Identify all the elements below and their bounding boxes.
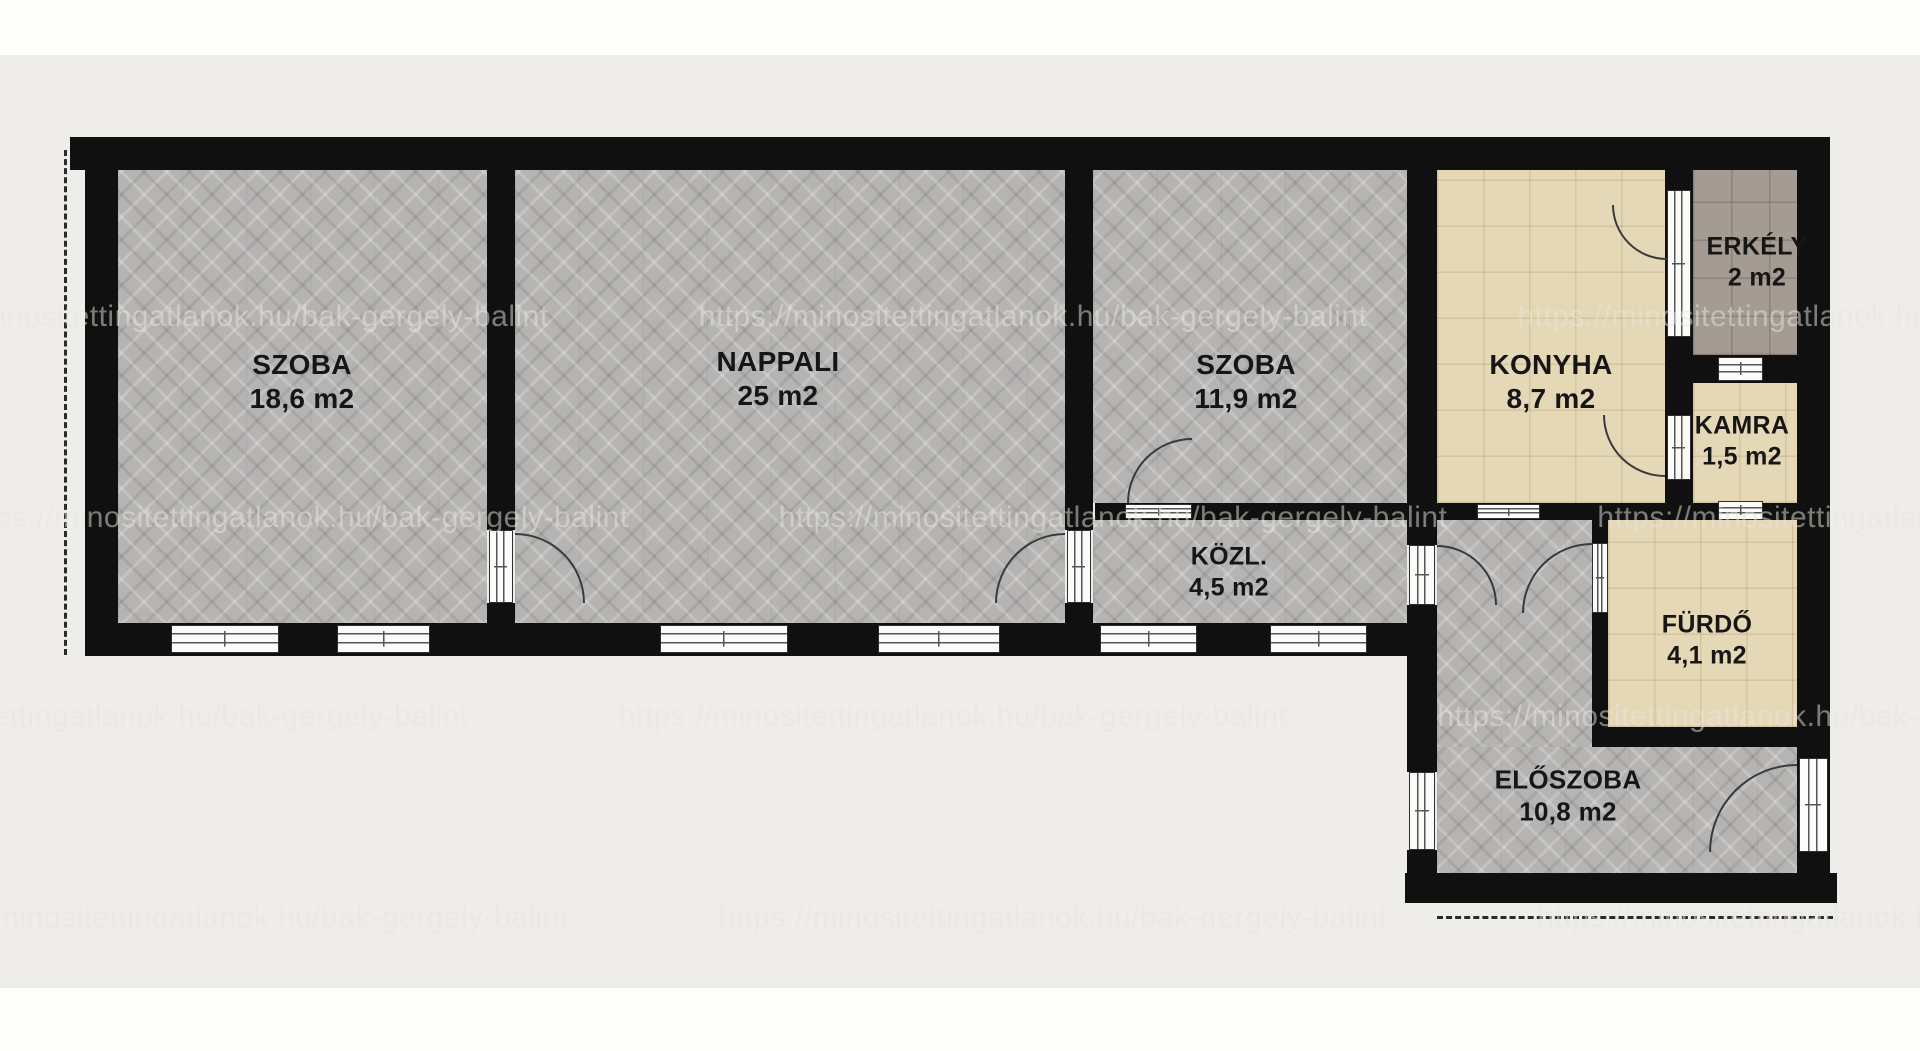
- room-area: 11,9 m2: [1194, 382, 1297, 416]
- room-area: 25 m2: [717, 379, 840, 413]
- room-label-kozl: KÖZL. 4,5 m2: [1189, 542, 1269, 603]
- wall-top: [70, 137, 1830, 170]
- window: [171, 625, 279, 653]
- door-entrance: [1799, 758, 1828, 852]
- opening-konyha-entry: [1477, 504, 1540, 519]
- window-erkely-kamra: [1718, 357, 1763, 381]
- wall-szoba2-konyha: [1407, 170, 1437, 503]
- window-kamra-bottom: [1718, 501, 1763, 520]
- room-area: 1,5 m2: [1695, 441, 1790, 472]
- door-konyha-kamra: [1667, 415, 1691, 480]
- room-label-szoba2: SZOBA 11,9 m2: [1194, 348, 1297, 416]
- room-area: 18,6 m2: [250, 382, 355, 416]
- wall-nappali-szoba2-stub: [1065, 603, 1093, 623]
- opening-szoba2-kozl: [1125, 504, 1192, 519]
- window: [337, 625, 430, 653]
- wall-szoba1-nappali: [487, 170, 515, 530]
- room-label-nappali: NAPPALI 25 m2: [717, 345, 840, 413]
- room-label-kamra: KAMRA 1,5 m2: [1695, 411, 1790, 472]
- room-name: ELŐSZOBA: [1495, 764, 1642, 796]
- window: [878, 625, 1000, 653]
- room-name: FÜRDŐ: [1662, 610, 1752, 641]
- window: [660, 625, 788, 653]
- room-label-erkely: ERKÉLY 2 m2: [1707, 232, 1808, 293]
- window-konyha-erkely: [1667, 190, 1691, 337]
- window-eloszoba-left: [1409, 772, 1435, 850]
- wall-eloszoba-left-upper: [1407, 656, 1437, 772]
- floor-plan: SZOBA 18,6 m2 NAPPALI 25 m2 SZOBA 11,9 m…: [0, 0, 1920, 1051]
- room-name: NAPPALI: [717, 345, 840, 379]
- room-area: 2 m2: [1707, 262, 1808, 293]
- room-name: SZOBA: [1194, 348, 1297, 382]
- wall-eloszoba-left-lower: [1407, 850, 1437, 875]
- door-kozl-eloszoba: [1409, 545, 1435, 605]
- room-name: SZOBA: [250, 348, 355, 382]
- wall-eloszoba-bottom: [1405, 873, 1837, 903]
- boundary-dashed-left: [64, 150, 67, 655]
- room-label-eloszoba: ELŐSZOBA 10,8 m2: [1495, 764, 1642, 827]
- room-area: 8,7 m2: [1489, 382, 1612, 416]
- wall-left: [85, 168, 118, 656]
- window: [1100, 625, 1197, 653]
- room-label-szoba1: SZOBA 18,6 m2: [250, 348, 355, 416]
- boundary-dashed-bottom: [1437, 916, 1833, 919]
- room-name: ERKÉLY: [1707, 232, 1808, 263]
- door-furdo: [1592, 543, 1608, 613]
- wall-kozl-eloszoba-stub: [1407, 605, 1437, 623]
- wall-szoba1-nappali-stub: [487, 603, 515, 623]
- room-area: 10,8 m2: [1495, 796, 1642, 828]
- door-nappali-kozl: [1067, 530, 1091, 603]
- wall-kozl-eloszoba-upper: [1407, 518, 1437, 545]
- room-name: KONYHA: [1489, 348, 1612, 382]
- room-name: KÖZL.: [1189, 542, 1269, 573]
- wall-furdo-bottom: [1592, 727, 1830, 747]
- door-szoba1-nappali: [489, 530, 513, 603]
- window: [1270, 625, 1367, 653]
- room-label-furdo: FÜRDŐ 4,1 m2: [1662, 610, 1752, 671]
- room-area: 4,5 m2: [1189, 572, 1269, 603]
- room-area: 4,1 m2: [1662, 640, 1752, 671]
- room-szoba2-floor: [1093, 170, 1407, 503]
- room-label-konyha: KONYHA 8,7 m2: [1489, 348, 1612, 416]
- wall-nappali-szoba2: [1065, 170, 1093, 530]
- room-name: KAMRA: [1695, 411, 1790, 442]
